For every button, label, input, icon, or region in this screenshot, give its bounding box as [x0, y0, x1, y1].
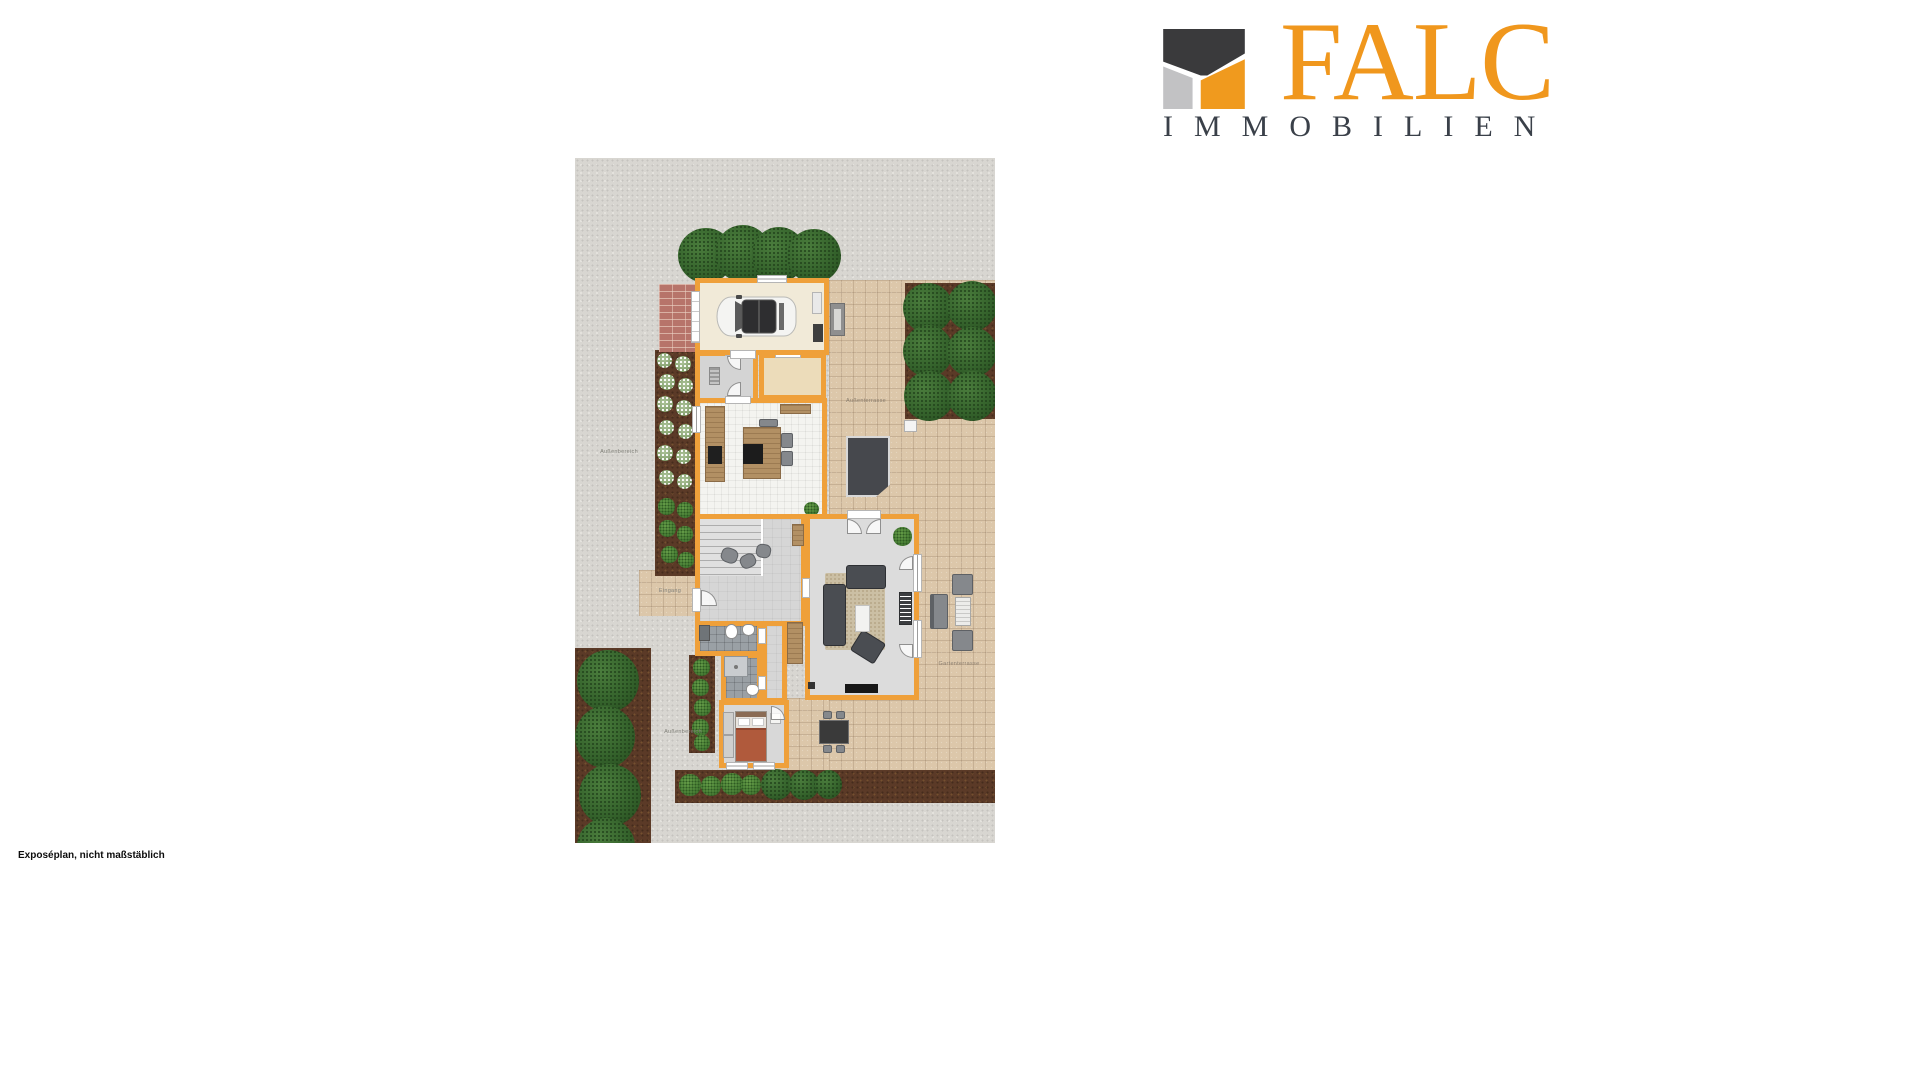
bedroom-wardrobe [723, 712, 734, 758]
doormat [830, 303, 845, 336]
living-window-2 [913, 620, 922, 658]
dining-chair [781, 433, 793, 448]
sofa-left [823, 584, 846, 646]
living-window-1 [913, 554, 922, 592]
label-terrace-upper: Außenterrasse [837, 398, 895, 404]
coffee-table [855, 605, 870, 632]
hedge-bottom [679, 774, 701, 796]
garage-door [691, 291, 700, 343]
garden-chair [952, 574, 973, 595]
kitchen-counter [705, 406, 725, 482]
sideboard [780, 404, 811, 414]
sofa-top [846, 565, 886, 589]
footer-note: Exposéplan, nicht maßstäblich [18, 850, 165, 861]
toilet [742, 624, 755, 636]
cooktop [708, 446, 722, 464]
terrace-dining-table [846, 436, 890, 497]
floor-plan: Außenbereich Außenterrasse Gartenterrass… [575, 158, 995, 843]
tv-board [845, 684, 878, 693]
falc-logo-mark-icon [1163, 29, 1245, 109]
brand-subtitle: IMMOBILIEN [1163, 110, 1583, 144]
bed [735, 711, 767, 762]
ac-unit [904, 420, 917, 432]
shower [724, 656, 748, 677]
label-entrance: Eingang [649, 588, 691, 594]
label-outdoor-left: Außenbereich [589, 449, 649, 455]
page: { "logo": { "brand": "FALC", "subtitle":… [0, 0, 1920, 1080]
bedroom-window [726, 762, 748, 770]
car [715, 295, 797, 338]
brand-wordmark: FALC [1262, 6, 1554, 118]
living-plant [893, 527, 912, 546]
garden-bed-bedroom-side [689, 655, 715, 753]
hedge-block-right [905, 283, 995, 419]
bath-sink [725, 624, 738, 639]
bush-left-column [577, 650, 639, 712]
fireplace [899, 592, 912, 625]
island-sink [743, 444, 763, 464]
room-pantry [759, 353, 826, 400]
garden-sofa [930, 594, 948, 629]
garage-cabinet [812, 292, 822, 314]
garage-shelf [813, 324, 823, 342]
hallway-wardrobe [787, 622, 803, 664]
hall-dresser [792, 524, 804, 546]
floor-grate [709, 367, 720, 385]
falc-logo [1163, 29, 1245, 109]
label-terrace-lower: Gartenterrasse [929, 661, 989, 667]
front-door [692, 588, 701, 612]
patio-table [819, 720, 849, 744]
label-outdoor-bottom: Außenbereich [653, 729, 713, 735]
living-double-door [847, 510, 881, 519]
flower-bed [655, 350, 699, 576]
garage-window [757, 275, 787, 283]
garden-table [955, 597, 971, 626]
